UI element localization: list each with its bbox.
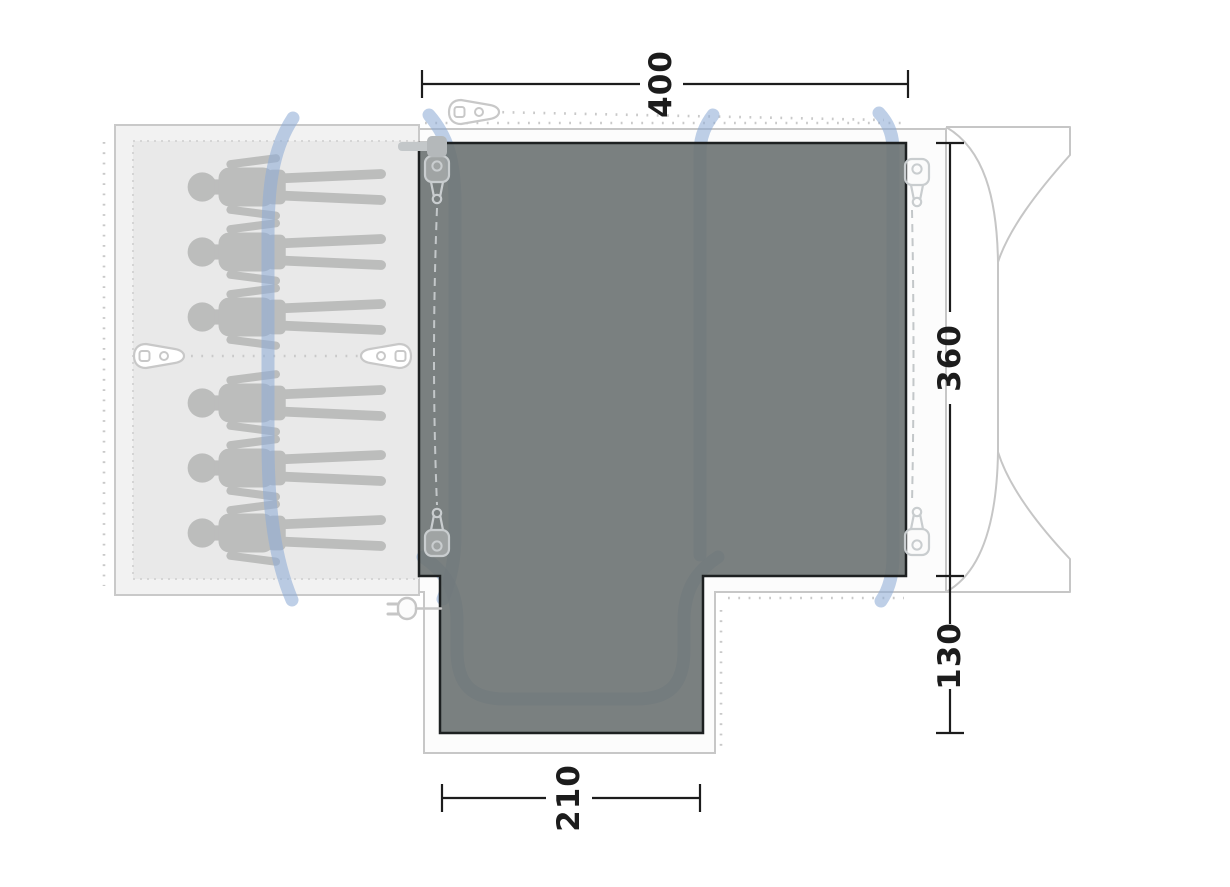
tent-peg-icon-top [449, 100, 499, 124]
tent-floorplan-diagram: 400 360 130 210 [0, 0, 1230, 887]
dimension-label-400: 400 [643, 50, 679, 118]
dimension-label-210: 210 [551, 764, 587, 832]
floorplan-canvas: 400 360 130 210 [0, 0, 1230, 887]
living-area-floor [419, 143, 906, 733]
dimension-label-130: 130 [932, 622, 968, 690]
dimension-label-360: 360 [932, 324, 968, 392]
guyline-top-upper [492, 112, 884, 120]
